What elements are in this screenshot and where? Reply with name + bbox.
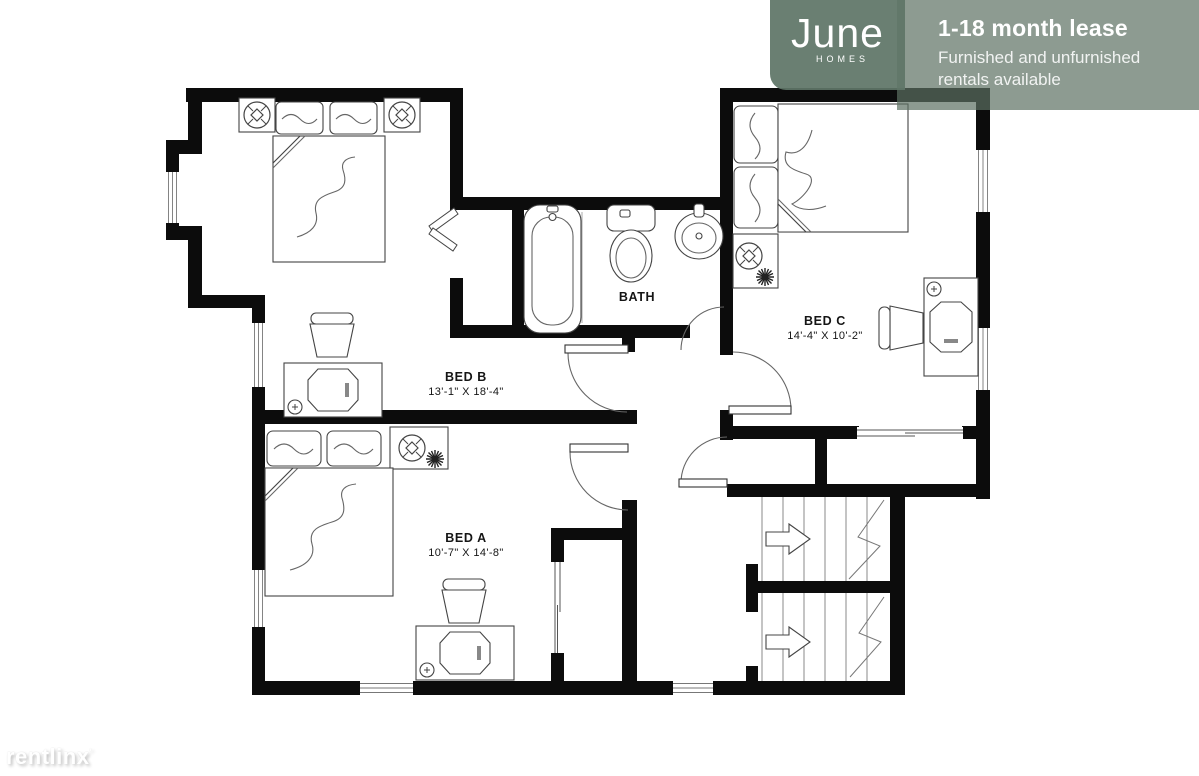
- door-stairs: [679, 437, 727, 487]
- window: [976, 150, 990, 212]
- table-lamp: [389, 102, 415, 128]
- desk: [416, 626, 514, 680]
- window: [360, 681, 413, 695]
- watermark-text: rentlinx: [6, 744, 89, 769]
- bifold-closet-door: [429, 208, 458, 251]
- toilet: [607, 205, 655, 282]
- pillow: [734, 167, 778, 228]
- sink: [675, 204, 723, 259]
- room-name: BED B: [428, 370, 504, 384]
- logo-wordmark: June: [770, 12, 905, 55]
- watermark-mark: ': [89, 748, 92, 759]
- plant: [756, 268, 774, 286]
- rentlinx-watermark: rentlinx': [6, 744, 92, 770]
- double-bed: [265, 431, 393, 596]
- floorplan-drawing: [0, 0, 1199, 776]
- window: [166, 172, 179, 223]
- plant: [426, 450, 444, 468]
- table-lamp: [244, 102, 270, 128]
- room-label-bath: BATH: [619, 290, 655, 304]
- bathtub: [524, 205, 581, 333]
- double-bed: [273, 102, 385, 262]
- table-lamp: [736, 243, 762, 269]
- room-label-bed-c: BED C 14'-4" X 10'-2": [787, 314, 863, 342]
- june-homes-logo: June HOMES: [770, 0, 905, 90]
- desk-chair: [310, 313, 354, 357]
- room-dimensions: 14'-4" X 10'-2": [787, 330, 863, 342]
- desk: [284, 363, 382, 417]
- window: [252, 570, 265, 627]
- door-bed-b: [565, 345, 628, 412]
- room-name: BED C: [787, 314, 863, 328]
- room-name: BATH: [619, 290, 655, 304]
- door-bed-a: [570, 444, 628, 510]
- double-bed: [734, 104, 908, 232]
- bathroom-fixtures: [524, 204, 723, 333]
- table-lamp: [399, 435, 425, 461]
- lease-headline: 1-18 month lease: [938, 15, 1199, 42]
- floorplan-image: BED B 13'-1" X 18'-4" BED A 10'-7" X 14'…: [0, 0, 1199, 776]
- lease-info-banner: 1-18 month lease Furnished and unfurnish…: [897, 0, 1199, 110]
- room-name: BED A: [428, 531, 504, 545]
- room-label-bed-b: BED B 13'-1" X 18'-4": [428, 370, 504, 398]
- door-bed-c: [729, 352, 791, 414]
- sliding-door: [552, 562, 563, 653]
- room-label-bed-a: BED A 10'-7" X 14'-8": [428, 531, 504, 559]
- bed-b-furniture: [239, 98, 420, 417]
- room-dimensions: 10'-7" X 14'-8": [428, 547, 504, 559]
- room-dimensions: 13'-1" X 18'-4": [428, 386, 504, 398]
- window: [673, 681, 713, 695]
- desk-chair: [442, 579, 486, 623]
- lease-subheadline: Furnished and unfurnished rentals availa…: [938, 47, 1176, 92]
- sliding-door: [857, 427, 963, 439]
- desk: [924, 278, 978, 376]
- pillow: [734, 106, 778, 163]
- desk-chair: [879, 306, 923, 350]
- window: [252, 323, 265, 387]
